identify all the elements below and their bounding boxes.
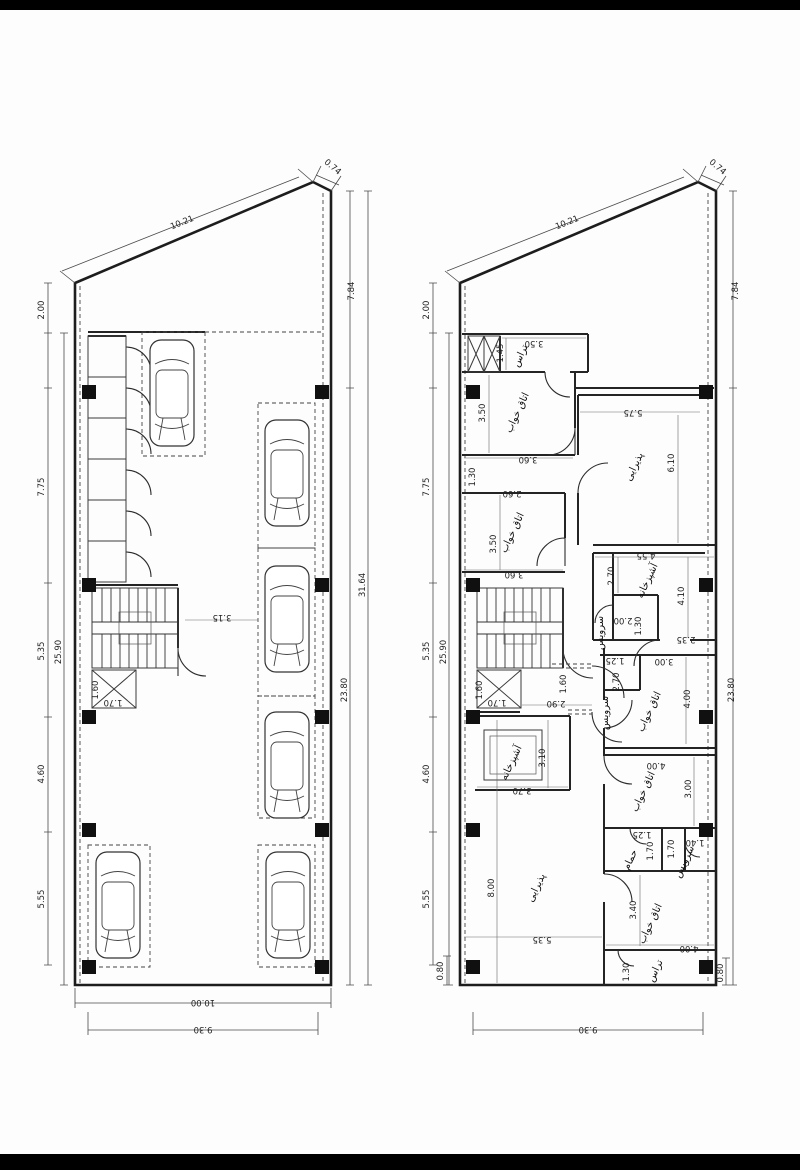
dim-label: 0.74	[322, 158, 343, 178]
dim-label: 1.25	[606, 655, 625, 665]
storage-unit	[88, 336, 151, 377]
storage-unit	[88, 500, 151, 541]
dim-label: 1.70	[104, 697, 123, 707]
column	[315, 385, 329, 399]
room-label: اتاق خواب	[636, 690, 664, 734]
dim-label: 3.00	[684, 780, 694, 799]
door-arc	[126, 470, 151, 495]
dim-label: 1.70	[667, 840, 677, 859]
dim-label: 1.30	[468, 468, 478, 487]
dim-label: 23.80	[727, 678, 737, 702]
residential-floor-plan: 10.210.742.007.755.354.605.5525.907.8423…	[422, 158, 741, 1035]
column	[315, 960, 329, 974]
dim-label: 3.00	[655, 656, 674, 666]
staircase	[477, 588, 563, 668]
door-arc	[178, 648, 206, 676]
parking-floor-plan: 10.210.742.007.755.354.605.5525.907.8423…	[37, 158, 372, 1035]
column	[466, 578, 480, 592]
dim-label: 5.55	[37, 890, 47, 909]
room-label: آشپزخانه	[497, 742, 525, 782]
dim-label: 0.80	[436, 962, 446, 981]
column	[82, 823, 96, 837]
dim-label: 1.60	[559, 675, 569, 694]
dim-label: 5.35	[533, 934, 552, 944]
dim-label: 3.10	[538, 749, 548, 768]
car-icon	[96, 852, 140, 958]
column	[315, 710, 329, 724]
dim-label: 3.60	[505, 569, 524, 579]
column	[466, 710, 480, 724]
column	[82, 578, 96, 592]
dim-label: 1.70	[488, 697, 507, 707]
dim-label: 0.74	[707, 158, 728, 178]
dim-label: 2.35	[677, 634, 696, 644]
dim-label: 3.15	[213, 612, 232, 622]
storage-unit	[88, 541, 151, 582]
column	[315, 578, 329, 592]
column	[82, 710, 96, 724]
car-icon	[265, 420, 309, 526]
dim-label: 1.30	[622, 963, 632, 982]
dim-label: 1.30	[634, 617, 644, 636]
door-arc	[126, 388, 151, 413]
column	[699, 578, 713, 592]
column	[699, 960, 713, 974]
dim-label: 9.30	[194, 1024, 213, 1034]
dim-label: 4.60	[37, 765, 47, 784]
room-label: اتاق خواب	[637, 902, 665, 946]
dim-label: 5.35	[37, 642, 47, 661]
dim-label: 5.35	[422, 642, 432, 661]
room-label: سرویس	[595, 616, 606, 650]
dim-label: 3.60	[519, 454, 538, 464]
column	[466, 385, 480, 399]
dim-label: 4.55	[637, 550, 656, 560]
dim-label: 5.75	[624, 407, 643, 417]
dim-label: 8.00	[487, 879, 497, 898]
dim-label: 1.60	[475, 681, 485, 700]
room-label: پذیرایی	[623, 451, 646, 483]
dim-label: 3.50	[478, 404, 488, 423]
dimension-lines	[429, 166, 737, 1035]
door-arc	[126, 552, 151, 577]
dim-label: 4.00	[680, 943, 699, 953]
room-label: اتاق خواب	[504, 391, 532, 435]
dim-label: 2.70	[612, 673, 622, 692]
dim-label: 25.90	[439, 640, 449, 664]
car-icon	[265, 712, 309, 818]
storage-unit	[88, 459, 151, 500]
dim-label: 10.21	[554, 214, 580, 232]
dim-label: 2.00	[422, 301, 432, 320]
room-label: سرویس	[600, 696, 611, 730]
dim-label: 2.00	[37, 301, 47, 320]
column	[466, 960, 480, 974]
dim-label: 9.30	[579, 1024, 598, 1034]
column	[315, 823, 329, 837]
column	[699, 385, 713, 399]
floor-plans-drawing: 10.210.742.007.755.354.605.5525.907.8423…	[0, 0, 800, 1170]
car-icon	[265, 566, 309, 672]
dim-label: 1.70	[646, 842, 656, 861]
dim-label: 10.21	[169, 214, 195, 232]
dim-label: 4.60	[422, 765, 432, 784]
staircase	[92, 588, 178, 668]
dim-label: 31.64	[358, 573, 368, 597]
dim-label: 2.60	[503, 488, 522, 498]
dim-label: 4.00	[683, 690, 693, 709]
dim-label: 1.45	[496, 344, 506, 363]
column	[82, 385, 96, 399]
room-label: تراس	[511, 343, 531, 369]
door-arc	[126, 429, 151, 454]
dim-label: 23.80	[340, 678, 350, 702]
dim-label: 1.60	[91, 681, 101, 700]
room-label: اتاق خواب	[499, 511, 527, 555]
dim-label: 6.10	[667, 454, 677, 473]
dim-label: 2.90	[547, 698, 566, 708]
car-icon	[266, 852, 310, 958]
column	[699, 710, 713, 724]
dim-label: 7.84	[731, 282, 741, 301]
column	[699, 823, 713, 837]
room-label: تراس	[646, 958, 666, 984]
dim-label: 4.00	[647, 760, 666, 770]
column	[82, 960, 96, 974]
drawing-sheet: 10.210.742.007.755.354.605.5525.907.8423…	[0, 0, 800, 1170]
dim-label: 2.00	[614, 615, 633, 625]
dim-label: 5.55	[422, 890, 432, 909]
dim-label: 3.40	[629, 901, 639, 920]
dim-label: 7.75	[37, 478, 47, 497]
room-label: پذیرایی	[525, 872, 548, 904]
dim-label: 2.70	[607, 567, 617, 586]
dim-label: 4.10	[677, 587, 687, 606]
door-arc	[126, 511, 151, 536]
dim-label: 7.75	[422, 478, 432, 497]
dim-label: 7.84	[347, 282, 357, 301]
room-label: حمام	[621, 848, 640, 872]
dim-lines	[464, 338, 714, 983]
dim-label: 0.80	[716, 964, 726, 983]
dim-label: 25.90	[54, 640, 64, 664]
door-arc	[126, 347, 151, 372]
column	[466, 823, 480, 837]
dim-label: 1.25	[633, 829, 652, 839]
dim-label: 10.00	[191, 997, 215, 1007]
dim-label: 3.70	[513, 785, 532, 795]
room-label: اتاق خواب	[630, 770, 658, 814]
car-icon	[150, 340, 194, 446]
